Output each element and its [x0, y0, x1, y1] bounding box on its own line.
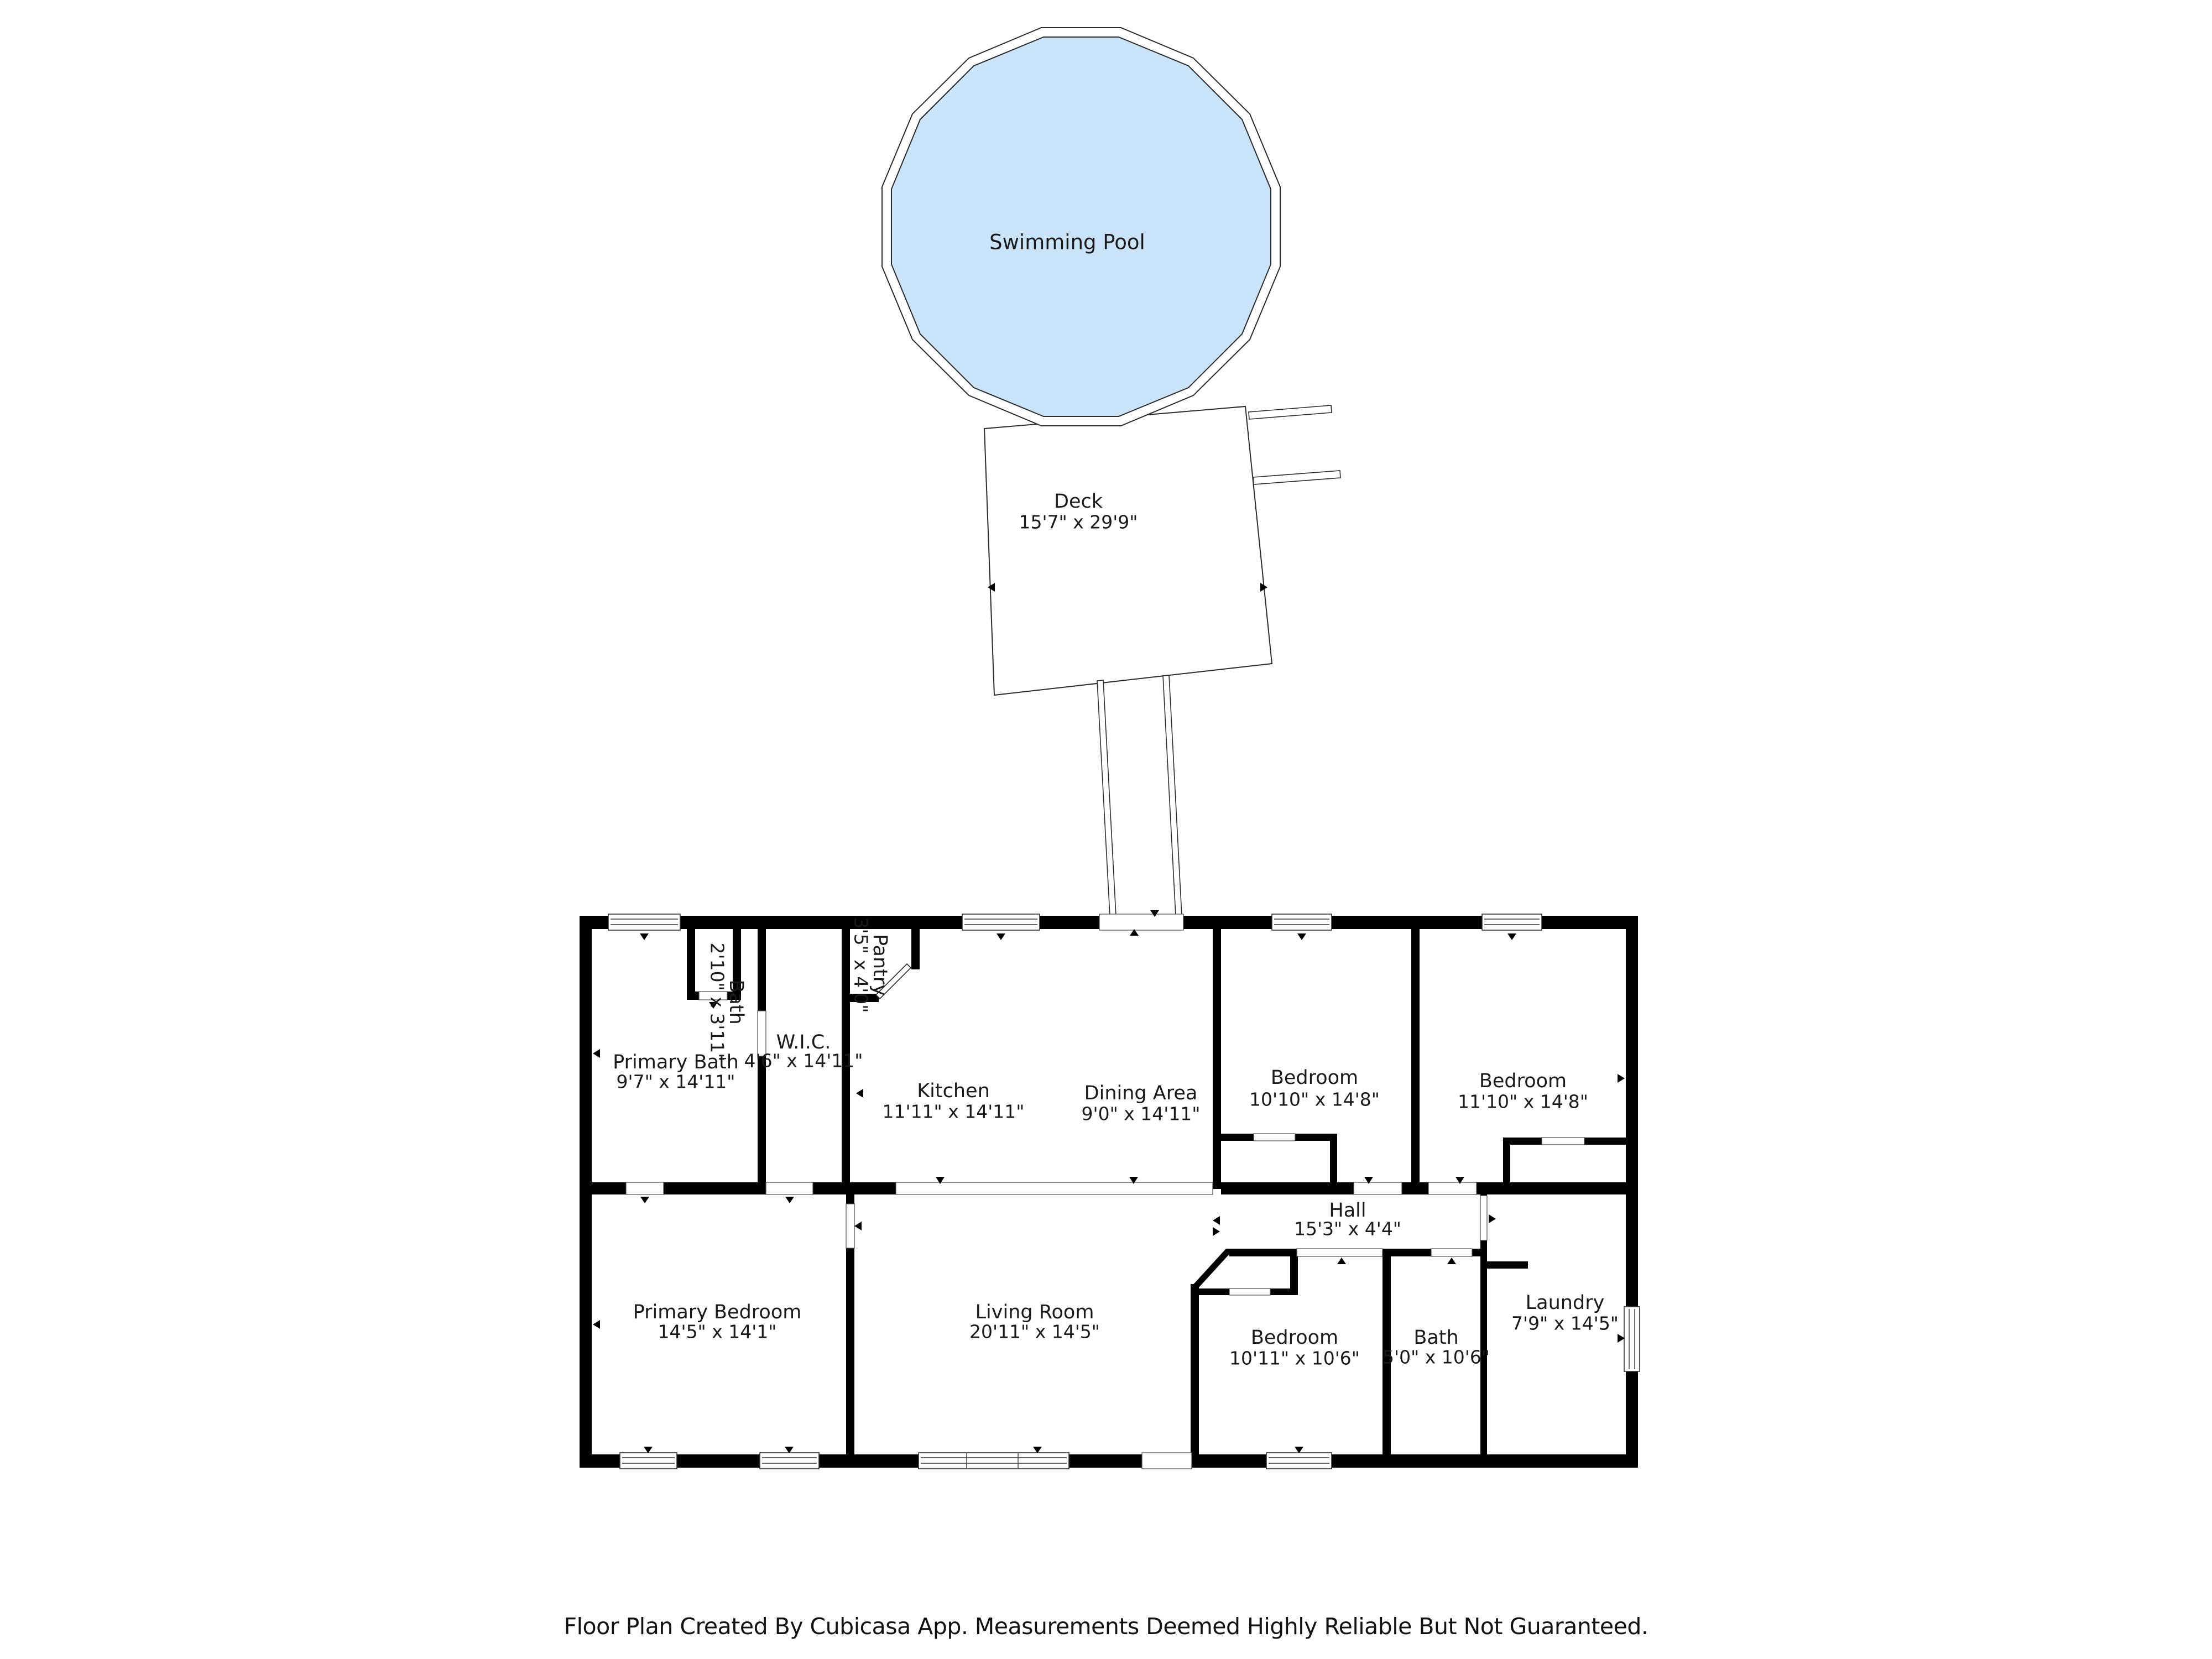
door-arrow-icon — [593, 1320, 600, 1329]
door-opening — [1431, 1249, 1472, 1256]
door-arrow-icon — [1447, 1258, 1456, 1264]
room-dims-bath2: 5'0" x 10'6" — [1383, 1347, 1490, 1368]
room-dims-bath-small: 2'10" x 3'11" — [707, 943, 728, 1062]
closet-opening — [1542, 1138, 1584, 1145]
room-dims-laundry: 7'9" x 14'5" — [1511, 1313, 1619, 1334]
deck-door-opening — [1099, 914, 1183, 930]
deck-label: Deck — [1054, 491, 1103, 513]
room-label-kitchen: Kitchen — [917, 1080, 990, 1102]
front-door-opening — [1142, 1453, 1192, 1469]
pool-water — [891, 37, 1271, 416]
room-dims-bedroom-left: 10'10" x 14'8" — [1249, 1089, 1380, 1110]
closet-opening — [1254, 1134, 1295, 1141]
door-arrow-icon — [856, 1089, 863, 1098]
door-opening — [626, 1182, 664, 1194]
door-arrow-icon — [1297, 933, 1306, 940]
footer-disclaimer: Floor Plan Created By Cubicasa App. Meas… — [564, 1613, 1648, 1640]
room-label-bath2: Bath — [1413, 1327, 1458, 1349]
door-arrow-icon — [593, 1049, 600, 1058]
room-dims-living-room: 20'11" x 14'5" — [969, 1321, 1100, 1343]
door-opening — [1297, 1249, 1383, 1256]
door-arrow-icon — [1337, 1258, 1346, 1264]
floor-plan-canvas: Swimming Pool Deck 15'7" x 29'9" — [0, 0, 2212, 1659]
window — [608, 914, 680, 930]
room-dims-primary-bedroom: 14'5" x 14'1" — [658, 1321, 777, 1343]
door-arrow-icon — [1507, 933, 1516, 940]
wide-opening — [896, 1182, 1213, 1194]
room-dims-bedroom-bottom: 10'11" x 10'6" — [1229, 1348, 1360, 1369]
door-arrow-icon — [1213, 1216, 1220, 1225]
room-label-bedroom-left: Bedroom — [1271, 1067, 1358, 1089]
room-label-laundry: Laundry — [1526, 1292, 1605, 1314]
door-arrow-icon — [997, 933, 1005, 940]
window — [760, 1453, 819, 1469]
room-dims-wic: 4'6" x 14'11" — [744, 1050, 863, 1072]
door-arrow-icon — [785, 1197, 794, 1203]
door-arrow-icon — [644, 1447, 653, 1453]
floor-plan-page: Swimming Pool Deck 15'7" x 29'9" — [0, 0, 2212, 1659]
door-arrow-icon — [1618, 1074, 1625, 1083]
closet-opening — [1229, 1288, 1270, 1295]
window — [620, 1453, 677, 1469]
deck-dims: 15'7" x 29'9" — [1019, 512, 1138, 533]
window — [1624, 1307, 1640, 1371]
deck-outline — [984, 406, 1272, 695]
deck-rail-icon — [1253, 471, 1340, 484]
door-arrow-icon — [1295, 1447, 1303, 1453]
walkway-rail-icon — [1163, 675, 1182, 916]
deck — [984, 405, 1340, 916]
room-dims-primary-bath: 9'7" x 14'11" — [617, 1071, 735, 1093]
door-opening — [766, 1182, 813, 1194]
pool-label: Swimming Pool — [989, 231, 1145, 254]
room-dims-hall: 15'3" x 4'4" — [1294, 1218, 1401, 1240]
room-dims-dining: 9'0" x 14'11" — [1082, 1103, 1201, 1125]
door-arrow-icon — [1618, 1334, 1625, 1343]
room-dims-bedroom-right: 11'10" x 14'8" — [1458, 1091, 1588, 1113]
door-opening — [1428, 1182, 1477, 1194]
door-arrow-icon — [785, 1447, 794, 1453]
door-arrow-icon — [1489, 1214, 1496, 1223]
door-opening — [1354, 1182, 1402, 1194]
window — [1482, 914, 1542, 930]
room-label-bedroom-right: Bedroom — [1479, 1070, 1567, 1092]
window — [962, 914, 1040, 930]
room-label-dining: Dining Area — [1084, 1082, 1198, 1104]
room-dims-pantry: 3'5" x 4'0" — [851, 917, 872, 1013]
room-dims-kitchen: 11'11" x 14'11" — [883, 1101, 1025, 1123]
swimming-pool: Swimming Pool — [882, 28, 1280, 426]
window — [1272, 914, 1332, 930]
door-opening — [1480, 1196, 1487, 1240]
window — [1266, 1453, 1332, 1469]
door-arrow-icon — [1213, 1227, 1220, 1236]
door-arrow-icon — [1033, 1447, 1042, 1453]
deck-rail-icon — [1249, 405, 1332, 419]
door-arrow-icon — [854, 1222, 862, 1230]
window-triple — [919, 1453, 1069, 1469]
door-openings — [626, 964, 1584, 1295]
room-label-living-room: Living Room — [975, 1301, 1094, 1323]
walkway-rail-icon — [1097, 680, 1116, 916]
door-arrow-icon — [640, 1197, 649, 1203]
door-arrow-icon — [640, 933, 649, 940]
door-opening — [846, 1204, 854, 1248]
room-label-bedroom-bottom: Bedroom — [1251, 1327, 1338, 1349]
room-label-primary-bedroom: Primary Bedroom — [633, 1301, 802, 1323]
